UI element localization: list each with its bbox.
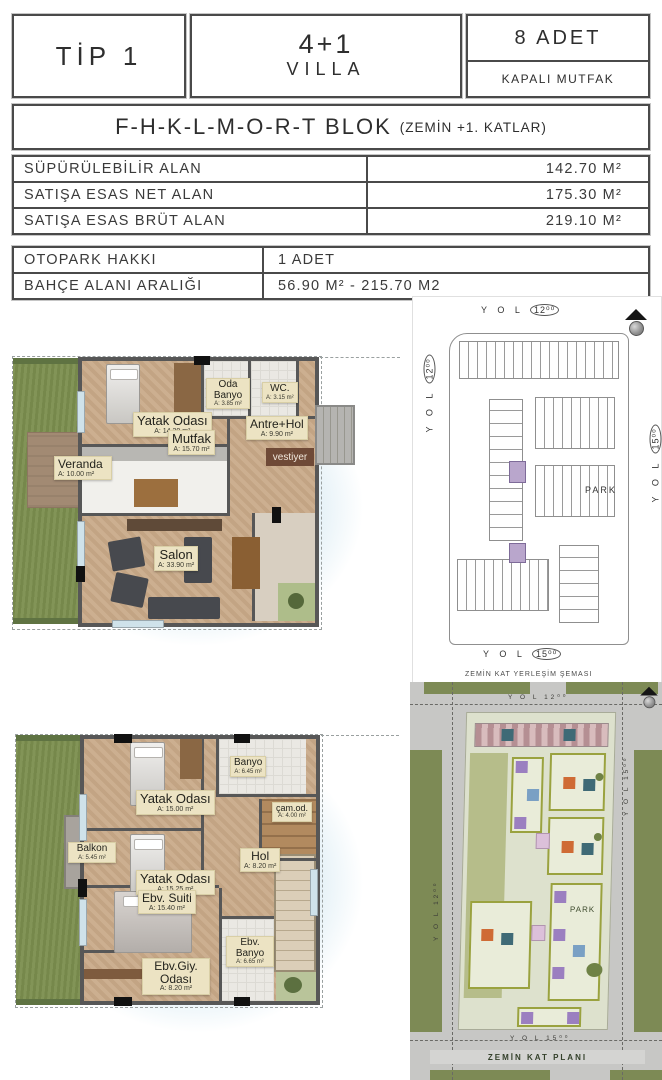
count-cell: 8 ADET (468, 16, 648, 60)
room-label-veranda: Veranda A: 10.00 m² (54, 456, 112, 480)
unit-teal (581, 843, 593, 855)
table-row: SÜPÜRÜLEBİLİR ALAN 142.70 M² (14, 157, 648, 181)
unit-kind-label: VILLA (286, 58, 365, 81)
pillow (110, 369, 138, 380)
column (114, 997, 132, 1006)
highlighted-unit (509, 543, 526, 563)
row-label: BAHÇE ALANI ARALIĞI (14, 278, 262, 294)
unit-teal (501, 729, 513, 741)
unit-pink (531, 925, 545, 941)
compass-icon (640, 687, 658, 709)
column (272, 507, 281, 523)
building-cluster (548, 883, 603, 1001)
tv-unit-icon (127, 519, 222, 531)
table-row: SATIŞA ESAS BRÜT ALAN 219.10 M² (14, 207, 648, 233)
building-cluster (468, 901, 532, 989)
room-label-balkon: Balkon A: 5.45 m² (68, 842, 116, 863)
garden-edge (16, 735, 80, 741)
lot-boundary-ext (321, 735, 399, 736)
unit-purple (554, 891, 566, 903)
window (112, 620, 164, 628)
road-label-top: Y O L 12⁰⁰ (508, 693, 569, 701)
window (310, 869, 318, 916)
garden-edge (13, 358, 78, 364)
sofa-icon (110, 572, 149, 608)
block-title: F-H-K-L-M-O-R-T BLOK (115, 114, 392, 140)
kitchen-table-icon (134, 479, 178, 507)
info-table: OTOPARK HAKKI 1 ADET BAHÇE ALANI ARALIĞI… (12, 246, 650, 300)
city-block (610, 1070, 662, 1080)
dining-table-icon (232, 537, 260, 589)
first-floor-plan: Yatak Odası A: 15.00 m² Banyo A: 6.45 m²… (0, 690, 410, 1080)
area-table: SÜPÜRÜLEBİLİR ALAN 142.70 M² SATIŞA ESAS… (12, 155, 650, 235)
road-centerline (452, 682, 453, 1080)
road-centerline (410, 704, 662, 705)
column (78, 879, 87, 897)
row-label: SATIŞA ESAS BRÜT ALAN (14, 213, 366, 229)
unit-cluster (457, 559, 549, 611)
garden-edge (13, 618, 78, 624)
wall (219, 888, 222, 1001)
city-block (634, 750, 662, 1032)
wall (82, 513, 230, 516)
entry-stairs (315, 405, 355, 465)
table-row: SATIŞA ESAS NET ALAN 175.30 M² (14, 181, 648, 207)
room-label-salon: Salon A: 33.90 m² (154, 546, 198, 571)
wall (216, 794, 316, 797)
room-label-oda-banyo: Oda Banyo A: 3.85 m² (206, 378, 250, 409)
window (79, 794, 87, 841)
kitchen-cell: KAPALI MUTFAK (468, 60, 648, 96)
room-label-cam-od: çam.od. A: 4.00 m² (272, 802, 312, 822)
rowhouse-strip (474, 723, 609, 747)
rowhouse-strip (459, 341, 619, 379)
table-row: BAHÇE ALANI ARALIĞI 56.90 M² - 215.70 M2 (14, 272, 648, 298)
road-label-right: Y O L 15⁰⁰ (651, 383, 662, 503)
site-parcel: PARK (458, 712, 616, 1030)
room-label-hol: Hol A: 8.20 m² (240, 848, 280, 872)
inner-garden-patch (276, 972, 316, 1001)
compass-globe (643, 696, 655, 708)
wall (84, 828, 204, 831)
count-kitchen-box: 8 ADET KAPALI MUTFAK (466, 14, 650, 98)
block-bar: F-H-K-L-M-O-R-T BLOK (ZEMİN +1. KATLAR) (12, 104, 650, 150)
room-label-vestiyer: vestiyer (266, 448, 314, 466)
row-label: SATIŞA ESAS NET ALAN (14, 187, 366, 203)
row-label: SÜPÜRÜLEBİLİR ALAN (14, 161, 366, 177)
room-label-antre-hol: Antre+Hol A: 9.90 m² (246, 416, 308, 440)
unit-orange (563, 777, 575, 789)
column (194, 356, 210, 365)
window (77, 391, 85, 433)
ground-floor-plan: Yatak Odası A: 14.20 m² Oda Banyo A: 3.8… (0, 330, 410, 690)
unit-blue (527, 789, 539, 801)
unit-purple (552, 967, 564, 979)
room-label-yatak-odasi-1: Yatak Odası A: 15.00 m² (136, 790, 215, 815)
unit-purple (553, 929, 565, 941)
row-value: 219.10 M² (366, 209, 648, 233)
lot-boundary-ext (320, 357, 400, 358)
unit-cluster (559, 545, 599, 623)
room-label-wc: WC. A: 3.15 m² (262, 382, 298, 403)
unit-cluster (535, 397, 615, 449)
block-floors-label: (ZEMİN +1. KATLAR) (400, 120, 547, 135)
unit-orange (561, 841, 573, 853)
type-box: TİP 1 (12, 14, 186, 98)
room-label-mutfak: Mutfak A: 15.70 m² (168, 430, 215, 455)
road-label-right: Y O L 15⁰⁰ (622, 756, 630, 816)
unit-type-label: 4+1 (299, 30, 354, 58)
room-label-ebv-banyo: Ebv. Banyo A: 6.65 m² (226, 936, 274, 967)
wall (227, 416, 230, 516)
park-label: PARK (570, 905, 595, 914)
window (79, 899, 87, 946)
compass-needle (640, 687, 658, 696)
building-cluster (517, 1007, 582, 1027)
building-cluster (547, 817, 605, 875)
row-value: 175.30 M² (366, 183, 648, 207)
room-label-ebv-suiti: Ebv. Suiti A: 15.40 m² (138, 890, 196, 914)
unit-purple (567, 1012, 579, 1024)
garden-edge (16, 999, 80, 1005)
pillow (134, 747, 162, 758)
count-label: 8 ADET (515, 27, 602, 50)
city-block (430, 1070, 550, 1080)
compass-globe (629, 321, 644, 336)
unit-purple (521, 1012, 533, 1024)
column (76, 566, 85, 582)
unit-blue (573, 945, 585, 957)
inner-garden-patch (278, 583, 315, 621)
unit-teal (583, 779, 595, 791)
unit-purple (516, 761, 528, 773)
site-plan-colored: PARK Y O L 12⁰⁰ Y O L 12⁰⁰ Y O L 15⁰⁰ Y … (410, 682, 662, 1080)
column (114, 734, 132, 743)
kitchen-type-label: KAPALI MUTFAK (502, 72, 615, 86)
road-label-left: Y O L 12⁰⁰ (425, 323, 436, 433)
compass-needle (625, 309, 647, 320)
column (234, 997, 250, 1006)
type-label: TİP 1 (56, 41, 143, 72)
park-label: PARK (585, 485, 617, 495)
road-label-top: Y O L 12⁰⁰ (481, 305, 559, 316)
floor-plan-sheet: { "header": { "tip": "TİP 1", "unit_type… (0, 0, 662, 1080)
row-label: OTOPARK HAKKI (14, 252, 262, 268)
bush-icon (288, 593, 304, 609)
site-plan-caption: ZEMİN KAT PLANI (488, 1053, 587, 1062)
unit-teal (501, 933, 513, 945)
building-cluster (549, 753, 607, 811)
highlighted-unit (509, 461, 526, 483)
row-value: 142.70 M² (366, 157, 648, 181)
site-plan-schematic: Y O L 12⁰⁰ Y O L 12⁰⁰ Y O L 15⁰⁰ PARK Y … (412, 296, 662, 688)
road-centerline (622, 682, 623, 1080)
caption-band: ZEMİN KAT PLANI (430, 1050, 645, 1064)
wardrobe-icon (174, 363, 201, 413)
wall (219, 916, 274, 919)
pillow (134, 839, 162, 850)
column (234, 734, 250, 743)
unit-teal (563, 729, 575, 741)
room-label-banyo: Banyo A: 6.45 m² (230, 756, 266, 777)
sofa-icon (108, 536, 146, 571)
row-value: 56.90 M² - 215.70 M2 (262, 274, 648, 298)
room-label-ebv-giy-odasi: Ebv.Giy. Odası A: 8.20 m² (142, 958, 210, 995)
site-plan-caption: ZEMİN KAT YERLEŞİM ŞEMASI (465, 671, 592, 678)
bush-icon (284, 977, 302, 993)
wall (216, 739, 219, 797)
road-label-bottom: Y O L 15⁰⁰ (483, 649, 561, 660)
unit-box: 4+1 VILLA (190, 14, 462, 98)
building-cluster (510, 757, 544, 833)
row-value: 1 ADET (262, 248, 648, 272)
road-label-bottom: Y O L 15⁰⁰ (510, 1034, 571, 1042)
table-row: OTOPARK HAKKI 1 ADET (14, 248, 648, 272)
unit-purple (514, 817, 526, 829)
unit-pink (536, 833, 550, 849)
compass-icon (625, 309, 647, 336)
wardrobe-icon (180, 739, 202, 779)
sofa-icon (148, 597, 220, 619)
wall (201, 361, 204, 416)
road-label-left: Y O L 12⁰⁰ (432, 881, 440, 941)
unit-orange (481, 929, 493, 941)
